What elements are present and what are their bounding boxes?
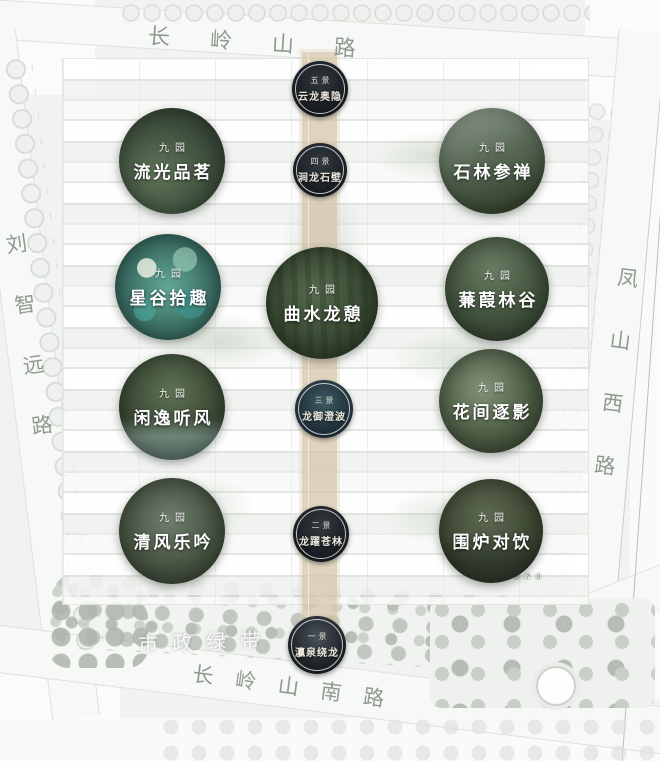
garden-qingfeng-leyin: 九园 清风乐吟 [119, 478, 225, 584]
axis-node-2-longyue-canglin: 二景 龙躍苍林 [293, 506, 349, 562]
garden-name: 花间逐影 [453, 398, 533, 423]
node-order: 一景 [308, 631, 330, 642]
node-order: 四景 [311, 156, 333, 167]
garden-tag: 九园 [159, 139, 191, 154]
garden-name: 闲逸听风 [134, 404, 214, 429]
garden-tag: 九园 [478, 379, 510, 394]
garden-shilin-canchan: 九园 石林参禅 [439, 108, 545, 214]
garden-name: 曲水龙憩 [284, 300, 364, 325]
tree-row-bottom-edge [160, 716, 660, 761]
garden-name: 清风乐吟 [134, 528, 214, 553]
axis-node-5-yunlong-aoyin: 五景 云龙奥隐 [292, 61, 348, 117]
garden-name: 星谷拾趣 [130, 284, 210, 309]
node-name: 龙躍苍林 [299, 533, 343, 548]
garden-huajian-zhuying: 九园 花间逐影 [439, 349, 543, 453]
node-name: 涧龙石壁 [298, 169, 342, 184]
garden-tag: 九园 [159, 385, 191, 400]
garden-tag: 九园 [159, 509, 191, 524]
axis-node-4-jianlong-shibi: 四景 涧龙石壁 [293, 143, 347, 197]
node-order: 五景 [311, 75, 333, 86]
node-name: 云龙奥隐 [298, 88, 342, 103]
garden-xianyi-tingfeng: 九园 闲逸听风 [119, 354, 225, 460]
plaza-circle [536, 666, 576, 706]
garden-liuguang-pinming: 九园 流光品茗 [119, 108, 225, 214]
node-order: 三景 [315, 395, 337, 406]
garden-weilu-duiyin: 九园 围炉对饮 [439, 479, 543, 583]
garden-xinggu-shiqu: 九园 星谷拾趣 [115, 234, 221, 340]
node-order: 二景 [312, 520, 334, 531]
node-name: 龙御澄波 [302, 408, 346, 423]
garden-name: 蒹葭林谷 [459, 286, 539, 311]
tree-cluster-bottom-left [48, 598, 148, 668]
garden-name: 石林参禅 [454, 158, 534, 183]
garden-name: 流光品茗 [134, 158, 214, 183]
garden-tag: 九园 [478, 509, 510, 524]
garden-tag: 九园 [155, 265, 187, 280]
garden-jianjia-lingu: 九园 蒹葭林谷 [445, 237, 549, 341]
node-name: 灜泉绕龙 [295, 644, 339, 659]
garden-qushui-longqi: 九园 曲水龙憩 [266, 247, 378, 359]
garden-tag: 九园 [479, 139, 511, 154]
garden-tag: 九园 [484, 267, 516, 282]
green-belt-label: 市政绿带 [138, 624, 275, 658]
site-plan: 长岭山路 刘智远路 凤山西路 长岭山南路 市政绿带 ⑥⑦⑧ 九园 流光品茗 九园… [0, 0, 660, 761]
axis-node-3-longyu-chengbo: 三景 龙御澄波 [295, 380, 353, 438]
axis-node-1-yingquan-raolong: 一景 灜泉绕龙 [288, 616, 346, 674]
garden-tag: 九园 [309, 281, 341, 296]
garden-name: 围炉对饮 [453, 528, 533, 553]
